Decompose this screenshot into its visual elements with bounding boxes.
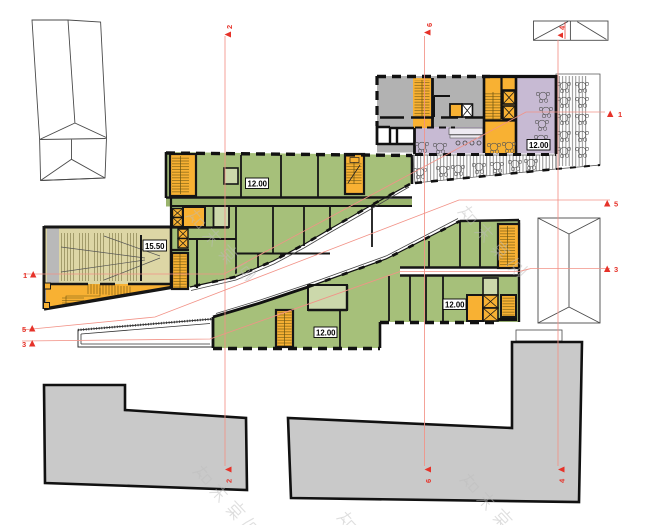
svg-text:12.00: 12.00 xyxy=(529,141,549,150)
svg-text:5: 5 xyxy=(614,200,618,209)
svg-text:3: 3 xyxy=(22,340,26,349)
svg-text:2: 2 xyxy=(225,479,234,483)
svg-text:2: 2 xyxy=(225,25,234,29)
svg-text:3: 3 xyxy=(614,265,618,274)
svg-text:15.50: 15.50 xyxy=(145,242,165,251)
svg-text:6: 6 xyxy=(424,479,433,483)
svg-text:12.00: 12.00 xyxy=(248,180,268,189)
svg-text:5: 5 xyxy=(22,325,26,334)
svg-text:6: 6 xyxy=(425,23,434,27)
svg-text:1: 1 xyxy=(618,110,622,119)
svg-text:1: 1 xyxy=(23,271,27,280)
svg-text:12.00: 12.00 xyxy=(316,329,336,338)
svg-text:12.00: 12.00 xyxy=(445,301,465,310)
